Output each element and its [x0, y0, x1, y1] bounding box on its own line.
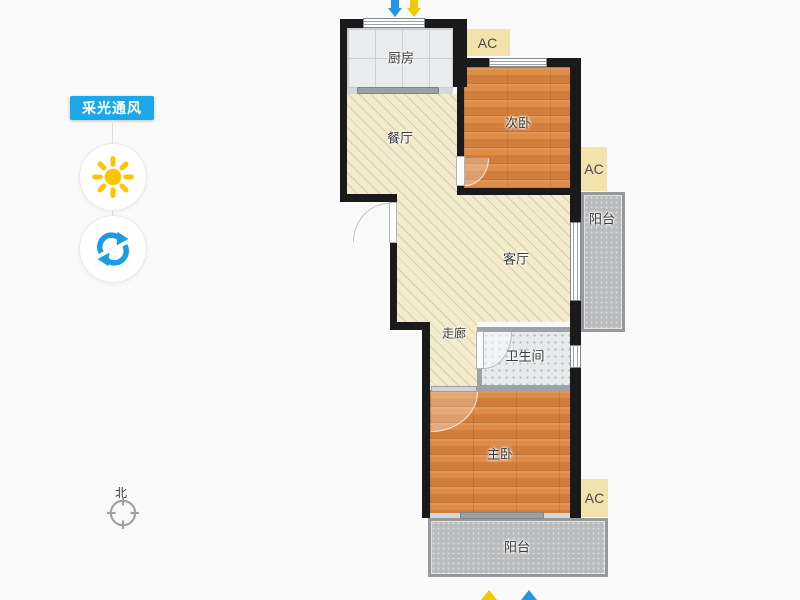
room-label-master-bedroom: 主卧: [487, 444, 513, 463]
ac-label: AC: [585, 490, 604, 506]
room-label-east-balcony: 阳台: [589, 209, 615, 228]
living-balcony-window: [570, 222, 581, 301]
wall-segment: [390, 322, 430, 330]
lighting-ventilation-label: 采光通风: [70, 96, 154, 120]
arrow-down-icon: [388, 0, 428, 18]
room-label-second-bedroom: 次卧: [505, 113, 531, 132]
entry-door-arc: [353, 203, 389, 242]
ac-unit: AC: [465, 29, 510, 56]
kitchen-sliding-door: [357, 87, 439, 94]
ac-unit: AC: [581, 479, 608, 517]
room-label-corridor: 走廊: [442, 325, 466, 342]
entry-door-leaf: [389, 202, 397, 243]
compass-icon: [105, 495, 141, 531]
wall-segment: [570, 301, 581, 345]
room-label-dining: 餐厅: [387, 128, 413, 147]
sun-icon: [91, 155, 135, 199]
wall-segment: [340, 19, 347, 202]
ac-label: AC: [584, 161, 603, 177]
room-label-kitchen: 厨房: [388, 48, 414, 67]
connector-line: [112, 120, 113, 144]
wall-segment: [422, 330, 430, 518]
refresh-icon: [93, 229, 133, 269]
wall-segment: [390, 242, 397, 330]
wall-segment: [340, 194, 397, 202]
wall-segment: [570, 368, 581, 518]
partition-wall: [477, 368, 482, 385]
sunlight-button[interactable]: [79, 143, 147, 211]
ventilation-refresh-button[interactable]: [79, 215, 147, 283]
ac-unit: AC: [581, 147, 607, 191]
bathroom-window: [570, 345, 581, 368]
ac-label: AC: [478, 35, 497, 51]
bathroom-door-leaf: [476, 331, 484, 369]
kitchen-window: [363, 18, 425, 28]
wall-segment: [457, 188, 581, 195]
wall-segment: [570, 58, 581, 190]
balcony-sliding-door: [460, 512, 544, 519]
second-bedroom-window: [489, 58, 547, 67]
wall-segment: [457, 67, 464, 158]
room-label-living: 客厅: [503, 249, 529, 268]
room-label-bathroom: 卫生间: [505, 346, 544, 365]
arrow-up-icon: [478, 590, 542, 600]
floorplan-viewer: 采光通风: [0, 0, 800, 600]
partition-wall: [477, 385, 570, 391]
wall-segment: [570, 195, 581, 222]
second-bedroom-door-leaf: [456, 156, 465, 186]
room-label-south-balcony: 阳台: [504, 537, 530, 556]
